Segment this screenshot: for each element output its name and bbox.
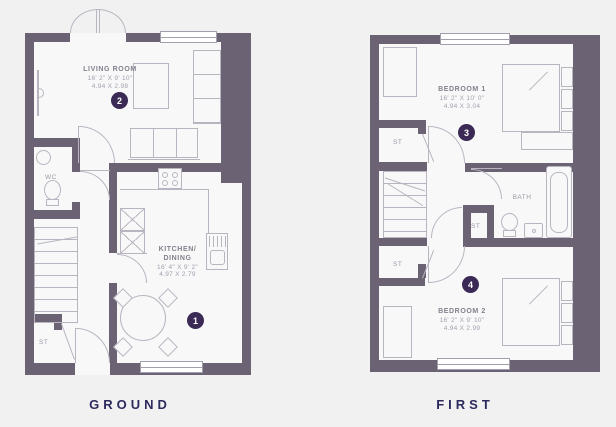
tall-unit <box>120 208 145 231</box>
wall <box>25 363 251 375</box>
room-badge: 1 <box>187 312 204 329</box>
toilet-cistern <box>503 230 516 237</box>
ground-floor-plan: LIVING ROOM 16' 2" X 9' 10" 4.94 X 2.98 … <box>25 8 251 376</box>
chaise-sofa <box>193 50 221 124</box>
burner <box>172 180 178 186</box>
ground-floor-label: GROUND <box>20 397 240 412</box>
wall <box>463 238 600 247</box>
wc-label: WC <box>45 174 57 181</box>
french-door-opening <box>70 33 126 42</box>
wall <box>418 120 426 134</box>
wall <box>25 33 34 375</box>
storage-label: ST <box>39 339 48 346</box>
room-badge: 3 <box>458 124 475 141</box>
counter-edge <box>208 189 209 233</box>
bedroom1-label: BEDROOM 1 16' 2" X 10' 0" 4.94 X 3.04 <box>417 86 507 110</box>
wall <box>370 35 379 372</box>
bathtub <box>546 166 572 238</box>
toilet-bowl <box>501 213 518 231</box>
wall <box>573 35 600 372</box>
room-badge: 4 <box>462 276 479 293</box>
wall <box>221 33 251 183</box>
dimensions-metric: 4.94 X 2.99 <box>417 325 507 333</box>
pillow <box>561 303 573 323</box>
room-name: LIVING ROOM <box>60 66 160 75</box>
first-floor-label: FIRST <box>355 397 575 412</box>
wall <box>378 162 427 171</box>
wall <box>109 163 117 253</box>
storage-label: ST <box>471 223 480 230</box>
wall <box>25 33 251 42</box>
dimensions-imperial: 16' 2" X 9' 10" <box>60 75 160 83</box>
french-door-arc <box>98 9 126 33</box>
basin-drain <box>532 229 536 233</box>
window <box>440 33 510 45</box>
dimensions-metric: 4.94 X 2.98 <box>60 83 160 91</box>
burner <box>162 180 168 186</box>
room-name: BEDROOM 1 <box>417 86 507 95</box>
room-badge: 2 <box>111 92 128 109</box>
stairs <box>34 227 78 323</box>
french-door-leaf <box>96 9 97 33</box>
pillow <box>561 325 573 345</box>
floorplan-page: LIVING ROOM 16' 2" X 9' 10" 4.94 X 2.98 … <box>0 0 616 427</box>
counter-edge <box>120 189 208 190</box>
pillow <box>561 281 573 301</box>
sofa <box>130 128 198 158</box>
wall <box>378 278 425 286</box>
first-floor-plan: BEDROOM 1 16' 2" X 10' 0" 4.94 X 3.04 3 … <box>362 8 608 376</box>
bathtub-inner <box>550 172 568 233</box>
storage-label: ST <box>393 261 402 268</box>
pillow <box>561 89 573 109</box>
room-name: KITCHEN/ <box>135 246 220 255</box>
bed <box>502 64 560 132</box>
room-name: DINING <box>135 255 220 264</box>
window <box>437 358 510 370</box>
dimensions-imperial: 16' 2" X 9' 10" <box>417 317 507 325</box>
room-name: BEDROOM 2 <box>417 308 507 317</box>
wall <box>378 238 427 246</box>
dimensions-metric: 4.94 X 3.04 <box>417 103 507 111</box>
dimensions-imperial: 16' 4" X 9' 2" <box>135 264 220 272</box>
stove <box>158 168 182 189</box>
bed <box>502 278 560 346</box>
bath-label: BATH <box>502 194 542 201</box>
sofa-base-line <box>128 159 200 160</box>
toilet-bowl <box>44 180 61 200</box>
toilet-cistern <box>46 199 59 206</box>
bedroom2-label: BEDROOM 2 16' 2" X 9' 10" 4.94 X 2.99 <box>417 308 507 332</box>
dimensions-imperial: 16' 2" X 10' 0" <box>417 95 507 103</box>
kitchen-dining-label: KITCHEN/ DINING 16' 4" X 9' 2" 4.97 X 2.… <box>135 246 220 279</box>
storage-label: ST <box>393 139 402 146</box>
burner <box>162 172 168 178</box>
window <box>140 361 203 373</box>
basin <box>524 223 543 238</box>
dimensions-metric: 4.97 X 2.79 <box>135 271 220 279</box>
window <box>160 31 217 43</box>
wall <box>34 210 80 219</box>
front-door-opening <box>75 363 110 375</box>
dresser <box>521 132 573 150</box>
french-door-arc <box>70 9 98 33</box>
burner <box>172 172 178 178</box>
wardrobe <box>383 306 412 358</box>
pillow <box>561 111 573 131</box>
pillow <box>561 67 573 87</box>
wardrobe <box>383 47 417 97</box>
wc-basin <box>36 150 51 165</box>
french-door-leaf <box>99 9 100 33</box>
living-room-label: LIVING ROOM 16' 2" X 9' 10" 4.94 X 2.98 <box>60 66 160 90</box>
